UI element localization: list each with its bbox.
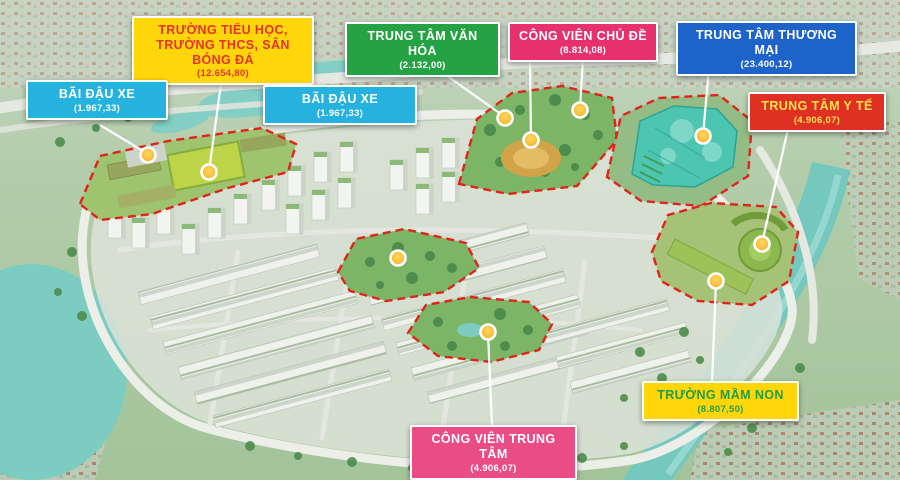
connector-central-park	[488, 333, 492, 426]
label-parking-central-area: (1.967,33)	[271, 108, 409, 119]
label-parking-west-area: (1.967,33)	[34, 103, 160, 114]
label-culture-center-area: (2.132,00)	[353, 60, 492, 71]
marker-park-secondary[interactable]	[391, 251, 406, 266]
label-kindergarten[interactable]: TRƯỜNG MẦM NON (8.807,50)	[642, 381, 799, 421]
marker-park-plaza[interactable]	[524, 133, 539, 148]
label-parking-central-title: BÃI ĐẬU XE	[271, 92, 409, 107]
label-theme-park-title: CÔNG VIÊN CHỦ ĐỀ	[516, 29, 650, 44]
connector-kindergarten	[712, 282, 716, 382]
label-central-park-area: (4.906,07)	[418, 463, 569, 474]
marker-kindergarten[interactable]	[709, 274, 724, 289]
label-central-park-title: CÔNG VIÊN TRUNG TÂM	[418, 432, 569, 462]
label-kindergarten-title: TRƯỜNG MẦM NON	[650, 388, 791, 403]
label-central-park[interactable]: CÔNG VIÊN TRUNG TÂM (4.906,07)	[410, 425, 577, 480]
masterplan-poster: TRƯỜNG TIỂU HỌC, TRƯỜNG THCS, SÂN BÓNG Đ…	[0, 0, 900, 480]
label-kindergarten-area: (8.807,50)	[650, 404, 791, 415]
label-medical-center-title: TRUNG TÂM Y TẾ	[756, 99, 878, 114]
location-markers	[141, 103, 770, 340]
connector-lines	[100, 57, 788, 426]
label-school-area: (12.654,80)	[140, 68, 306, 79]
label-culture-center-title: TRUNG TÂM VĂN HÓA	[353, 29, 492, 59]
label-commercial-center-area: (23.400,12)	[684, 59, 849, 70]
label-commercial-center-title: TRUNG TÂM THƯƠNG MẠI	[684, 28, 849, 58]
marker-culture-center[interactable]	[498, 111, 513, 126]
label-medical-center[interactable]: TRUNG TÂM Y TẾ (4.906,07)	[748, 92, 886, 132]
connector-parking-west	[100, 125, 148, 154]
marker-commercial-center[interactable]	[696, 129, 711, 144]
label-medical-center-area: (4.906,07)	[756, 115, 878, 126]
label-parking-west-title: BÃI ĐẬU XE	[34, 87, 160, 102]
connector-medical-center	[762, 129, 788, 243]
label-school[interactable]: TRƯỜNG TIỂU HỌC, TRƯỜNG THCS, SÂN BÓNG Đ…	[132, 16, 314, 85]
label-school-title: TRƯỜNG TIỂU HỌC, TRƯỜNG THCS, SÂN BÓNG Đ…	[140, 23, 306, 67]
marker-central-park[interactable]	[481, 325, 496, 340]
connector-park-plaza	[530, 58, 531, 139]
label-parking-central[interactable]: BÃI ĐẬU XE (1.967,33)	[263, 85, 417, 125]
label-commercial-center[interactable]: TRUNG TÂM THƯƠNG MẠI (23.400,12)	[676, 21, 857, 76]
marker-theme-park[interactable]	[573, 103, 588, 118]
marker-medical-center[interactable]	[755, 237, 770, 252]
label-culture-center[interactable]: TRUNG TÂM VĂN HÓA (2.132,00)	[345, 22, 500, 77]
label-parking-west[interactable]: BÃI ĐẬU XE (1.967,33)	[26, 80, 168, 120]
label-theme-park-area: (8.814,08)	[516, 45, 650, 56]
label-theme-park[interactable]: CÔNG VIÊN CHỦ ĐỀ (8.814,08)	[508, 22, 658, 62]
marker-parking-west[interactable]	[141, 148, 156, 163]
marker-school[interactable]	[202, 165, 217, 180]
